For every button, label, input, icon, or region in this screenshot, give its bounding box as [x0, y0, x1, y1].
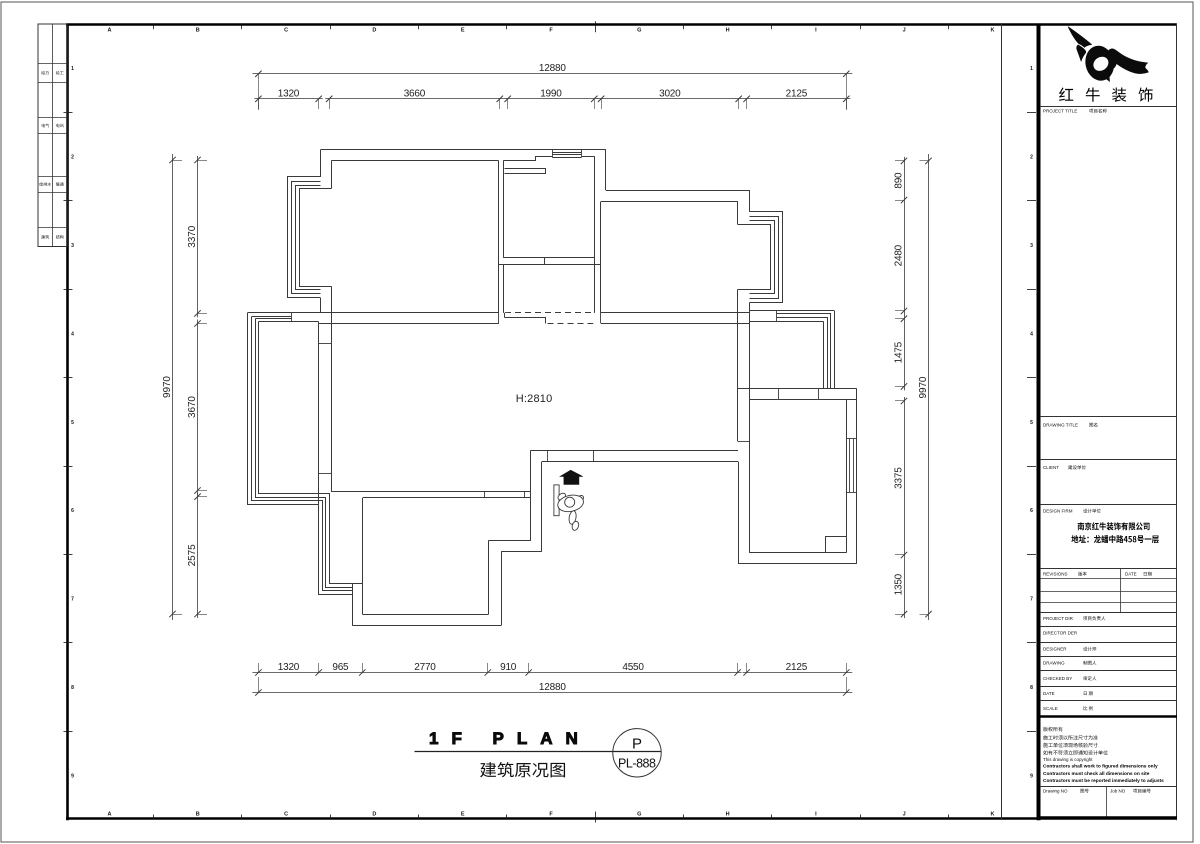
svg-text:6: 6 — [1030, 508, 1033, 514]
svg-text:1990: 1990 — [540, 88, 562, 99]
svg-text:2770: 2770 — [414, 662, 436, 673]
svg-text:3020: 3020 — [659, 88, 681, 99]
svg-text:9970: 9970 — [918, 376, 929, 398]
svg-text:Drawing NO: Drawing NO — [1043, 789, 1068, 794]
svg-text:3375: 3375 — [894, 467, 905, 489]
svg-text:Job NO: Job NO — [1110, 789, 1126, 794]
svg-text:1F PLAN: 1F PLAN — [429, 729, 591, 748]
svg-text:3370: 3370 — [187, 225, 198, 247]
svg-text:G: G — [637, 812, 641, 818]
svg-text:Contractors must be reported i: Contractors must be reported immediately… — [1043, 778, 1164, 784]
svg-text:4: 4 — [71, 331, 74, 337]
svg-text:1: 1 — [71, 66, 74, 72]
svg-text:H:2810: H:2810 — [516, 393, 553, 405]
svg-text:A: A — [108, 812, 112, 818]
svg-text:1: 1 — [1030, 66, 1033, 72]
svg-text:6: 6 — [71, 508, 74, 514]
svg-text:H: H — [726, 28, 730, 34]
svg-text:E: E — [461, 812, 465, 818]
svg-text:DRAWING: DRAWING — [1043, 661, 1065, 666]
svg-text:3660: 3660 — [404, 88, 426, 99]
svg-text:PL-888: PL-888 — [618, 757, 656, 771]
svg-text:K: K — [991, 812, 995, 818]
svg-text:9970: 9970 — [162, 376, 173, 398]
svg-text:7: 7 — [1030, 597, 1033, 603]
svg-text:1320: 1320 — [278, 88, 300, 99]
svg-text:12880: 12880 — [539, 682, 566, 693]
svg-text:D: D — [372, 812, 376, 818]
svg-text:J: J — [903, 28, 906, 34]
svg-text:DATE: DATE — [1125, 572, 1137, 577]
svg-text:890: 890 — [894, 172, 905, 189]
svg-text:DESIGNER: DESIGNER — [1043, 647, 1067, 652]
svg-text:2125: 2125 — [786, 88, 808, 99]
svg-text:3: 3 — [1030, 243, 1033, 249]
svg-text:7: 7 — [71, 597, 74, 603]
svg-text:REVISIONS: REVISIONS — [1043, 572, 1068, 577]
svg-text:2: 2 — [1030, 155, 1033, 161]
svg-text:2125: 2125 — [786, 662, 808, 673]
svg-text:4550: 4550 — [622, 662, 644, 673]
svg-text:965: 965 — [332, 662, 349, 673]
svg-text:Contractors shall work to figu: Contractors shall work to figured dimens… — [1043, 764, 1158, 770]
svg-text:A: A — [108, 28, 112, 34]
svg-text:DATE: DATE — [1043, 691, 1055, 696]
svg-text:DIRECTOR DER: DIRECTOR DER — [1043, 631, 1078, 636]
svg-text:C: C — [284, 28, 288, 34]
svg-text:5: 5 — [71, 420, 74, 426]
svg-text:5: 5 — [1030, 420, 1033, 426]
svg-text:B: B — [196, 28, 200, 34]
svg-text:CLIENT: CLIENT — [1043, 465, 1059, 470]
svg-text:H: H — [726, 812, 730, 818]
svg-text:12880: 12880 — [539, 63, 566, 74]
svg-text:P: P — [632, 736, 642, 753]
svg-text:C: C — [284, 812, 288, 818]
svg-text:Contractors must check all dim: Contractors must check all dimensions on… — [1043, 771, 1150, 777]
svg-text:CHECKED BY: CHECKED BY — [1043, 676, 1072, 681]
svg-text:9: 9 — [71, 773, 74, 779]
svg-text:2: 2 — [71, 155, 74, 161]
svg-text:8: 8 — [71, 685, 74, 691]
svg-text:1320: 1320 — [278, 662, 300, 673]
svg-text:This drawing is copyright: This drawing is copyright — [1043, 757, 1093, 762]
svg-text:K: K — [991, 28, 995, 34]
svg-text:2480: 2480 — [894, 244, 905, 266]
svg-text:1350: 1350 — [894, 573, 905, 595]
svg-text:PROJECT TITLE: PROJECT TITLE — [1043, 109, 1077, 114]
svg-text:DESIGN FIRM: DESIGN FIRM — [1043, 509, 1073, 514]
svg-text:SCALE: SCALE — [1043, 706, 1058, 711]
svg-text:PROJECT DIR: PROJECT DIR — [1043, 616, 1074, 621]
svg-text:1475: 1475 — [894, 341, 905, 363]
svg-text:3670: 3670 — [187, 396, 198, 418]
svg-text:DRAWING TITLE: DRAWING TITLE — [1043, 423, 1078, 428]
svg-text:4: 4 — [1030, 331, 1033, 337]
svg-text:B: B — [196, 812, 200, 818]
svg-text:E: E — [461, 28, 465, 34]
svg-text:G: G — [637, 28, 641, 34]
svg-text:2575: 2575 — [187, 544, 198, 566]
svg-text:D: D — [372, 28, 376, 34]
svg-text:J: J — [903, 812, 906, 818]
svg-text:8: 8 — [1030, 685, 1033, 691]
svg-text:3: 3 — [71, 243, 74, 249]
svg-text:910: 910 — [500, 662, 517, 673]
svg-text:9: 9 — [1030, 773, 1033, 779]
